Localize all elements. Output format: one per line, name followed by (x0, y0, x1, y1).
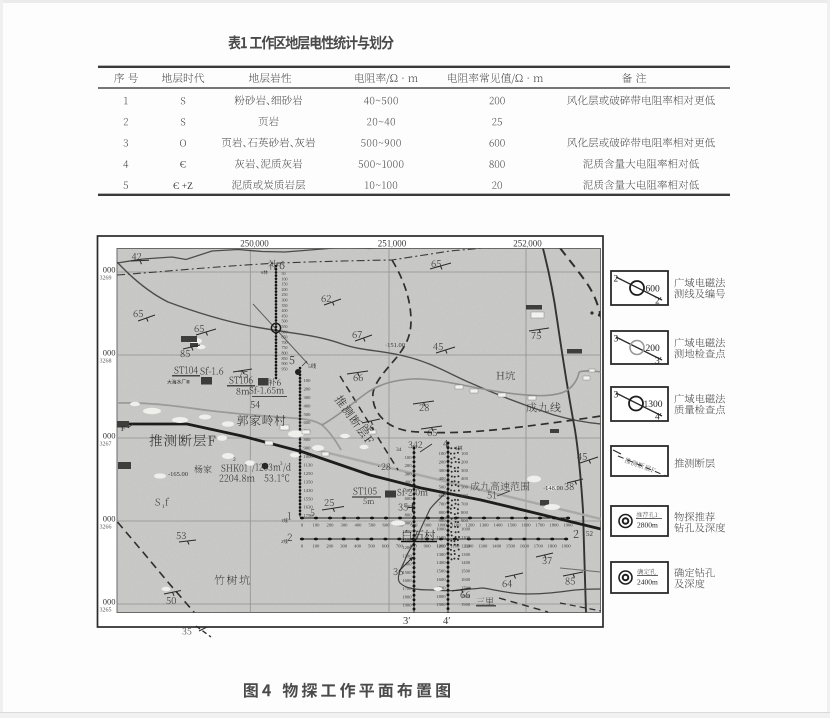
svg-text:6林: 6林 (261, 269, 268, 276)
svg-text:1130: 1130 (304, 463, 314, 468)
svg-text:1600: 1600 (520, 544, 530, 549)
svg-text:1400: 1400 (461, 560, 471, 565)
svg-text:400: 400 (439, 476, 447, 481)
svg-text:1000: 1000 (461, 527, 471, 532)
svg-text:800: 800 (405, 512, 413, 517)
svg-text:1900: 1900 (402, 603, 412, 608)
svg-text:1900: 1900 (436, 602, 446, 607)
svg-text:1900: 1900 (562, 544, 572, 549)
svg-text:1430: 1430 (304, 488, 314, 493)
svg-text:300: 300 (304, 395, 312, 400)
svg-text:1100: 1100 (436, 535, 446, 540)
svg-text:3′: 3′ (403, 616, 411, 627)
svg-text:400: 400 (355, 523, 363, 528)
svg-text:1800: 1800 (549, 523, 559, 528)
svg-text:100: 100 (461, 451, 469, 456)
svg-text:900: 900 (424, 544, 432, 549)
svg-text:1000: 1000 (436, 527, 446, 532)
svg-text:1000: 1000 (402, 529, 412, 534)
svg-text:200: 200 (646, 344, 661, 354)
svg-text:3268: 3268 (100, 359, 112, 365)
svg-text:·151.00: ·151.00 (385, 342, 405, 349)
svg-text:500: 500 (369, 523, 377, 528)
svg-text:200: 200 (326, 544, 334, 549)
svg-text:1750: 1750 (304, 513, 314, 518)
svg-text:1400: 1400 (493, 523, 503, 528)
svg-text:1600: 1600 (461, 577, 471, 582)
svg-text:1100: 1100 (451, 523, 461, 528)
svg-text:200: 200 (439, 459, 447, 464)
svg-text:800: 800 (304, 437, 312, 442)
svg-text:1000: 1000 (304, 454, 314, 459)
svg-text:1300: 1300 (479, 523, 489, 528)
svg-text:900: 900 (425, 523, 433, 528)
svg-text:1550: 1550 (304, 496, 314, 501)
svg-text:700: 700 (461, 501, 469, 506)
svg-text:000: 000 (103, 265, 116, 275)
svg-text:大海水厂Ⅲ: 大海水厂Ⅲ (167, 379, 190, 386)
svg-text:Є: Є (180, 161, 186, 171)
svg-text:600: 600 (304, 420, 312, 425)
svg-text:1500: 1500 (436, 569, 446, 574)
svg-text:000: 000 (103, 597, 116, 607)
svg-text:1300: 1300 (644, 400, 663, 410)
svg-text:F: F (121, 424, 125, 433)
svg-text:1200: 1200 (402, 545, 412, 550)
svg-text:650: 650 (282, 335, 288, 340)
svg-text:000: 000 (103, 348, 116, 358)
svg-text:1500: 1500 (507, 523, 517, 528)
svg-text:3265: 3265 (100, 608, 112, 614)
svg-text:50: 50 (282, 271, 286, 276)
svg-text:300: 300 (439, 468, 447, 473)
svg-text:600: 600 (646, 285, 661, 295)
svg-text:200: 200 (304, 386, 312, 391)
svg-text:900: 900 (282, 361, 288, 366)
svg-text:800: 800 (439, 510, 447, 515)
svg-text:500: 500 (439, 485, 447, 490)
svg-text:250: 250 (282, 292, 288, 297)
svg-text:100: 100 (313, 523, 321, 528)
svg-text:34: 34 (396, 447, 402, 453)
svg-text:1900: 1900 (563, 523, 573, 528)
svg-text:1600: 1600 (402, 578, 412, 583)
svg-text:250,000: 250,000 (240, 239, 269, 249)
svg-text:900: 900 (304, 446, 312, 451)
svg-text:1300: 1300 (402, 553, 412, 558)
svg-text:1600: 1600 (521, 523, 531, 528)
svg-text:450: 450 (282, 313, 288, 318)
svg-text:1: 1 (162, 504, 165, 510)
svg-text:3267: 3267 (100, 442, 112, 448)
svg-text:2′: 2′ (655, 297, 662, 307)
svg-text:000: 000 (103, 431, 116, 441)
svg-text:1100: 1100 (461, 535, 471, 540)
svg-text:200: 200 (327, 523, 335, 528)
svg-text:1800: 1800 (548, 544, 558, 549)
svg-text:4′: 4′ (655, 413, 662, 423)
svg-text:000: 000 (103, 514, 116, 524)
svg-text:200: 200 (282, 287, 288, 292)
svg-text:600: 600 (383, 523, 391, 528)
svg-text:700: 700 (282, 340, 288, 345)
svg-text:2: 2 (233, 457, 236, 463)
svg-text:1800: 1800 (436, 594, 446, 599)
svg-text:·148.00: ·148.00 (543, 485, 563, 492)
svg-text:1200: 1200 (436, 543, 446, 548)
svg-text:100: 100 (439, 451, 447, 456)
svg-text:700: 700 (439, 501, 447, 506)
svg-text:1200: 1200 (461, 543, 471, 548)
svg-text:1700: 1700 (402, 586, 412, 591)
svg-text:1630: 1630 (304, 505, 314, 510)
svg-text:500: 500 (304, 412, 312, 417)
svg-text:500: 500 (461, 485, 469, 490)
svg-text:300: 300 (341, 523, 349, 528)
svg-text:300: 300 (340, 544, 348, 549)
svg-text:1600: 1600 (436, 577, 446, 582)
svg-text:1500: 1500 (461, 569, 471, 574)
svg-text:2线: 2线 (281, 538, 288, 544)
svg-text:5线: 5线 (308, 362, 317, 370)
svg-text:400: 400 (282, 308, 288, 313)
svg-text:3: 3 (614, 335, 619, 345)
svg-text:400: 400 (405, 480, 413, 485)
svg-text:400: 400 (354, 544, 362, 549)
svg-text:1900: 1900 (461, 602, 471, 607)
svg-text:800: 800 (461, 510, 469, 515)
svg-text:52: 52 (586, 530, 594, 538)
svg-text:800: 800 (282, 351, 288, 356)
svg-text:600: 600 (439, 493, 447, 498)
svg-text:2400m: 2400m (637, 578, 658, 587)
svg-text:4′: 4′ (443, 616, 451, 627)
svg-text:3266: 3266 (100, 525, 112, 531)
svg-text:1线: 1线 (281, 517, 288, 523)
svg-text:-165.00: -165.00 (168, 471, 188, 478)
svg-text:750: 750 (282, 345, 288, 350)
svg-text:2800m: 2800m (637, 521, 658, 530)
svg-text:100: 100 (282, 276, 288, 281)
svg-text:·: · (377, 462, 380, 473)
svg-text:600: 600 (461, 493, 469, 498)
svg-text:350: 350 (282, 303, 288, 308)
svg-text:1800: 1800 (402, 594, 412, 599)
svg-text:100: 100 (304, 378, 312, 383)
svg-text:400: 400 (304, 403, 312, 408)
svg-text:500: 500 (368, 544, 376, 549)
svg-text:850: 850 (282, 356, 288, 361)
svg-text:3: 3 (614, 391, 619, 401)
svg-text:550: 550 (282, 324, 288, 329)
svg-text:900: 900 (405, 521, 413, 526)
svg-text:200: 200 (405, 463, 413, 468)
svg-text:500: 500 (282, 319, 288, 324)
svg-text:1300: 1300 (478, 544, 488, 549)
svg-text:1350: 1350 (304, 479, 314, 484)
svg-text:300: 300 (461, 468, 469, 473)
svg-text:3′: 3′ (655, 357, 662, 367)
svg-text:1400: 1400 (436, 560, 446, 565)
svg-text:2: 2 (614, 275, 619, 285)
svg-text:1700: 1700 (534, 544, 544, 549)
svg-text:1400: 1400 (492, 544, 502, 549)
svg-text:1300: 1300 (461, 552, 471, 557)
svg-text:200: 200 (461, 459, 469, 464)
svg-text:252,000: 252,000 (513, 239, 542, 249)
svg-text:900: 900 (439, 518, 447, 523)
svg-text:1250: 1250 (304, 471, 314, 476)
svg-text:251,000: 251,000 (378, 239, 407, 249)
svg-text:1300: 1300 (436, 552, 446, 557)
svg-text:150: 150 (282, 282, 288, 287)
svg-text:1500: 1500 (506, 544, 516, 549)
svg-text:600: 600 (382, 544, 390, 549)
svg-text:3269: 3269 (100, 276, 112, 282)
svg-text:1700: 1700 (535, 523, 545, 528)
svg-text:300: 300 (282, 298, 288, 303)
svg-text:1500: 1500 (402, 570, 412, 575)
svg-text:600: 600 (282, 329, 288, 334)
svg-text:600: 600 (405, 496, 413, 501)
svg-text:100: 100 (312, 544, 320, 549)
svg-text:300: 300 (405, 471, 413, 476)
svg-text:Є +Z: Є +Z (173, 182, 193, 192)
svg-text:400: 400 (461, 476, 469, 481)
svg-text:900: 900 (461, 518, 469, 523)
svg-text:950: 950 (282, 366, 288, 371)
svg-text:100: 100 (405, 455, 413, 460)
